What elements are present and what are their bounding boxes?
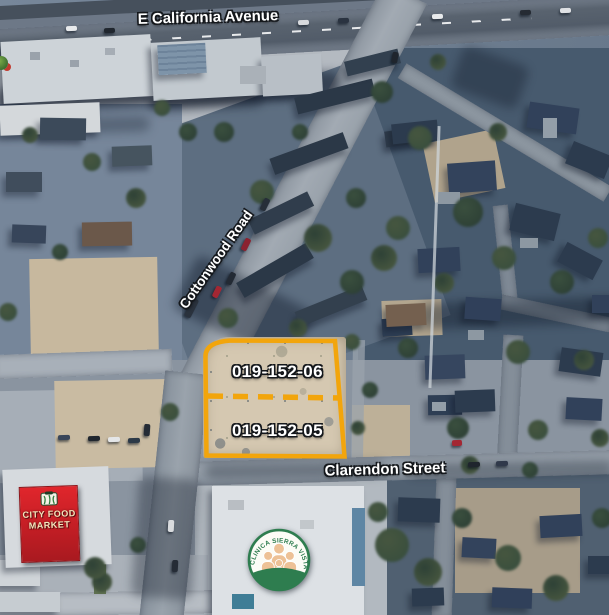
vehicle [172, 560, 179, 572]
tree [161, 403, 179, 421]
tree [340, 270, 364, 294]
building-roof [464, 297, 501, 321]
tree [591, 429, 609, 447]
tree [434, 273, 454, 293]
building-roof [565, 397, 602, 421]
tree [218, 308, 238, 328]
building-roof [492, 587, 533, 608]
building-roof [112, 145, 153, 166]
logo-hill [251, 568, 307, 591]
surface-detail [70, 60, 79, 67]
building-roof [588, 556, 609, 574]
clinica-sierra-vista-logo: CLINICA SIERRA VISTA [247, 528, 311, 592]
building-roof [261, 53, 323, 96]
tree [452, 508, 472, 528]
building-roof [417, 247, 460, 273]
tree [506, 340, 530, 364]
tree [592, 508, 609, 528]
market-sign-line2: MARKET [29, 519, 71, 531]
surface-detail [432, 402, 446, 411]
vehicle [338, 18, 349, 24]
surface-detail [352, 508, 365, 586]
tree [250, 180, 274, 204]
building-roof [398, 497, 441, 522]
building-roof [6, 172, 42, 192]
surface-detail [228, 500, 244, 510]
tree [52, 244, 68, 260]
tree [371, 81, 393, 103]
grocery-bag-icon [37, 491, 60, 507]
building-roof [157, 43, 207, 75]
building-roof [455, 389, 496, 412]
tree [528, 420, 548, 440]
vehicle [108, 437, 120, 442]
vehicle [58, 435, 70, 440]
tree [398, 338, 418, 358]
building-roof [0, 592, 60, 612]
vehicle [520, 10, 531, 16]
surface-detail [543, 118, 557, 138]
tree [292, 124, 308, 140]
tree [453, 197, 483, 227]
building-roof [40, 118, 86, 141]
building-roof [12, 224, 47, 243]
tree [22, 127, 38, 143]
vehicle [66, 26, 77, 32]
building-roof [461, 537, 496, 559]
tree [83, 153, 101, 171]
tree [375, 528, 409, 562]
tree [550, 270, 574, 294]
tree [344, 334, 360, 350]
building-roof [82, 222, 132, 247]
tree [414, 558, 442, 586]
tree [214, 122, 234, 142]
parcel-number-north: 019-152-06 [205, 362, 350, 382]
tree [492, 246, 516, 270]
tree [304, 224, 332, 252]
tree [522, 462, 538, 478]
tree [371, 245, 397, 271]
building-roof [592, 295, 609, 313]
dirt-lot [29, 257, 159, 354]
tree [489, 123, 507, 141]
tree [386, 216, 410, 240]
tree [84, 557, 106, 579]
vehicle [560, 8, 571, 14]
surface-detail [468, 330, 484, 340]
aerial-map: E California Avenue Cottonwood Road Clar… [0, 0, 609, 615]
tree [368, 502, 388, 522]
vehicle [168, 520, 175, 532]
tree [588, 228, 608, 248]
building-roof [385, 303, 426, 327]
city-food-market-sign: CITY FOOD MARKET [19, 485, 81, 563]
tree [430, 54, 446, 70]
tree [362, 382, 378, 398]
vehicle [104, 28, 115, 34]
building-roof [0, 34, 153, 104]
vehicle [496, 461, 508, 466]
building-roof [539, 514, 582, 538]
tree [408, 126, 432, 150]
tree [154, 100, 170, 116]
tree [447, 417, 469, 439]
vehicle [128, 438, 140, 443]
vehicle [298, 20, 309, 26]
vehicle [144, 424, 151, 436]
vehicle [452, 440, 462, 446]
surface-detail [520, 238, 538, 248]
tree [126, 188, 146, 208]
vehicle [432, 14, 443, 20]
building-roof [412, 587, 445, 606]
tree [351, 421, 365, 435]
surface-detail [30, 52, 40, 60]
parcel-number-south: 019-152-05 [205, 421, 350, 441]
tree [495, 545, 521, 571]
lane-parcel-east [351, 340, 365, 460]
surface-detail [232, 594, 254, 609]
tree [346, 188, 366, 208]
tree [289, 319, 307, 337]
surface-detail [240, 66, 266, 84]
tree [130, 537, 146, 553]
dirt-lot [54, 379, 168, 469]
tree [574, 350, 594, 370]
tree [179, 123, 197, 141]
vehicle [88, 436, 100, 441]
surface-detail [105, 48, 115, 55]
building-roof [447, 160, 497, 193]
tree [543, 575, 569, 601]
